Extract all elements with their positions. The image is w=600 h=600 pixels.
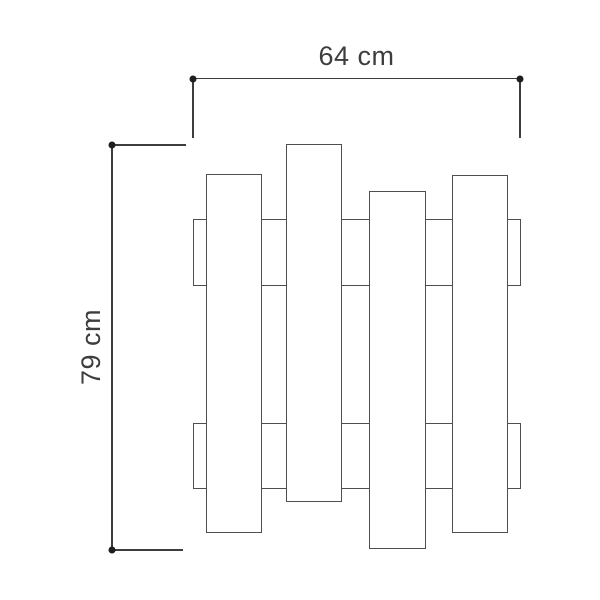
dimension-endpoint-dot	[109, 142, 116, 149]
plank-3	[369, 191, 426, 549]
height-dimension-label: 79 cm	[75, 282, 107, 412]
width-dimension-extension-left	[192, 79, 193, 138]
plank-2	[286, 144, 342, 502]
dimension-endpoint-dot	[109, 547, 116, 554]
diagram-canvas: 64 cm 79 cm	[0, 0, 600, 600]
dimension-endpoint-dot	[517, 76, 524, 83]
plank-4	[452, 175, 508, 533]
height-dimension-line	[111, 145, 112, 550]
width-dimension-line	[193, 78, 520, 79]
dimension-endpoint-dot	[190, 76, 197, 83]
height-dimension-extension-top	[112, 144, 186, 145]
height-dimension-extension-bottom	[112, 549, 183, 550]
width-dimension-label: 64 cm	[193, 41, 520, 72]
width-dimension-extension-right	[519, 79, 520, 138]
plank-1	[206, 174, 262, 533]
